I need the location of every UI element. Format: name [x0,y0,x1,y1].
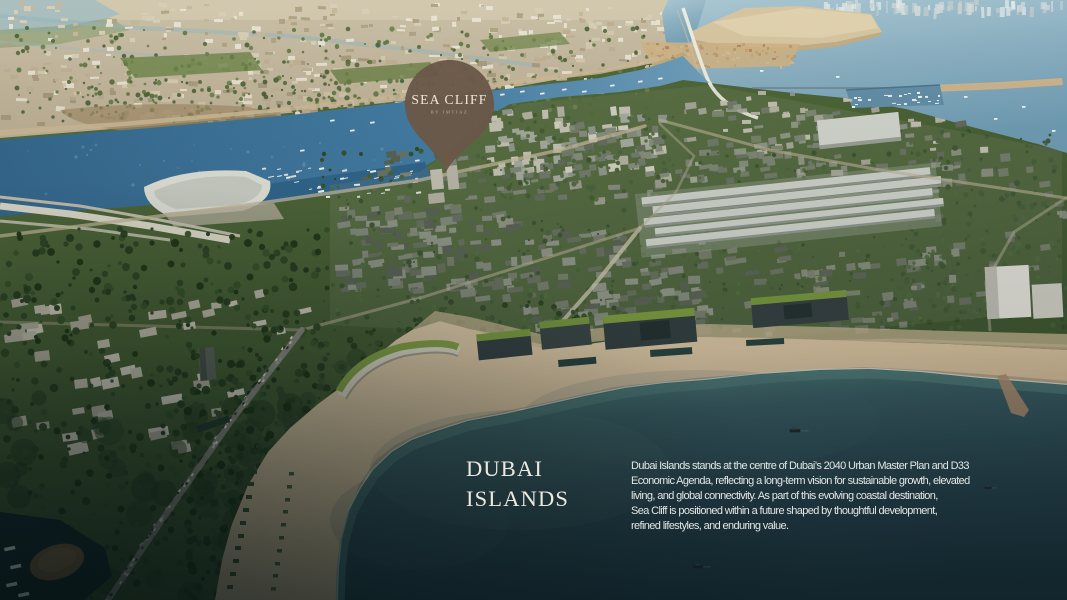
svg-text:SEA CLIFF: SEA CLIFF [411,92,487,107]
svg-text:BY IMTIAZ: BY IMTIAZ [431,110,469,115]
